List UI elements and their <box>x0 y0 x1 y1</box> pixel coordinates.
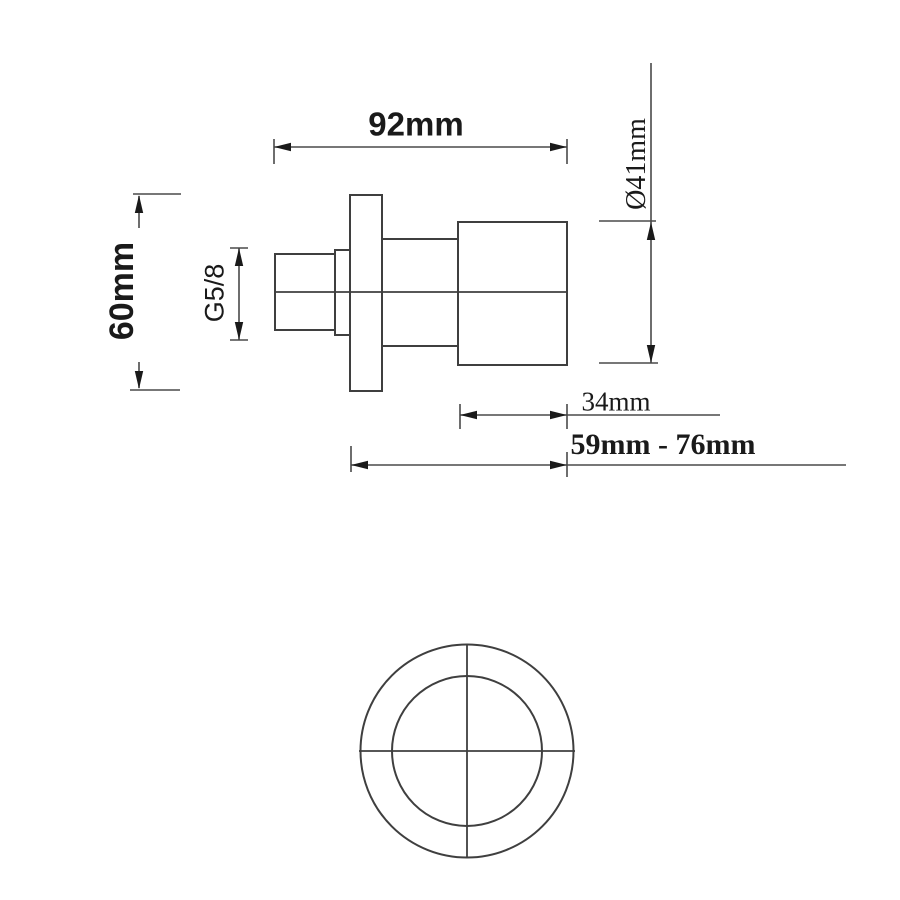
technical-drawing-canvas: 92mm 60mm G5/8 Ø41mm 34mm 59mm - 76mm <box>0 0 900 900</box>
front-view <box>359 644 575 858</box>
dim-label-handle-length: 34mm <box>581 389 650 416</box>
dim-label-handle-diameter: Ø41mm <box>623 118 651 210</box>
dim-label-thread-size: G5/8 <box>202 264 229 323</box>
dim-41mm-lines <box>599 63 658 363</box>
flange-outline <box>350 195 382 391</box>
dim-label-overall-length: 92mm <box>368 108 463 141</box>
dim-92mm-lines <box>274 139 567 164</box>
handle-outline <box>458 222 567 365</box>
side-view <box>275 195 567 391</box>
dim-label-depth-range: 59mm - 76mm <box>571 430 756 460</box>
dim-label-flange-height: 60mm <box>105 242 139 340</box>
